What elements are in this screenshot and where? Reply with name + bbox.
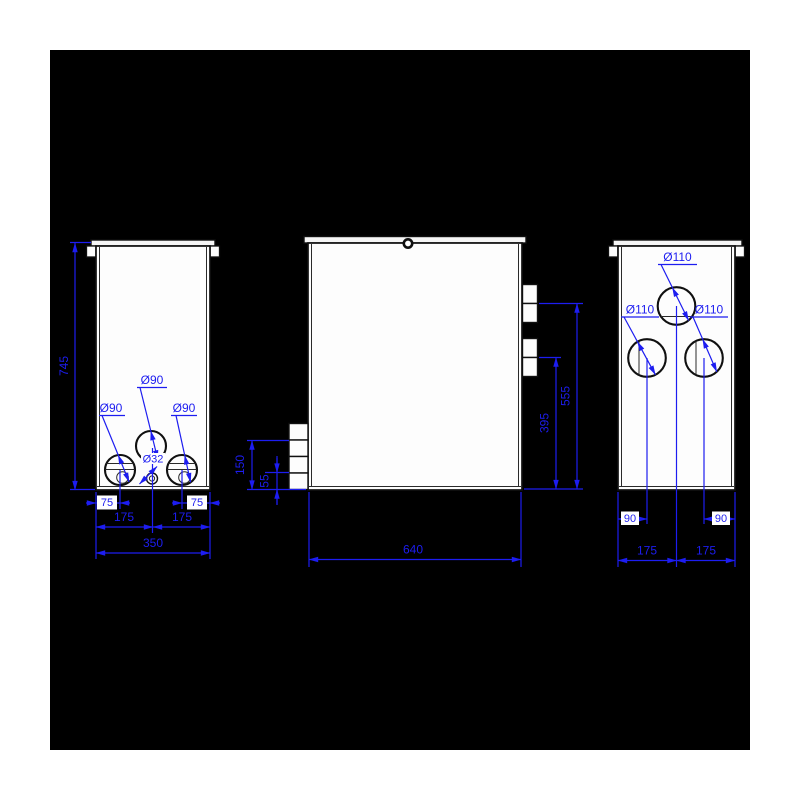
dia-label-right-hole: Ø110 <box>695 303 724 317</box>
dim-text-175-right: 175 <box>696 544 716 558</box>
dim-text-640: 640 <box>403 543 423 557</box>
dia-label-left-hole: Ø110 <box>626 303 655 317</box>
dim-text-55: 55 <box>258 474 272 488</box>
left-view-hook-left <box>87 246 97 257</box>
dim-text-395: 395 <box>538 413 552 433</box>
dim-text-75-right: 75 <box>191 497 203 509</box>
left-port-stub <box>289 457 308 474</box>
dim-text-175-right: 175 <box>172 510 192 524</box>
dia-label-left-hole: Ø90 <box>100 401 123 415</box>
dim-text-150: 150 <box>233 455 247 475</box>
right-port-stub <box>523 358 538 377</box>
right-view-top-lip <box>613 240 742 246</box>
dim-text-175-left: 175 <box>114 510 134 524</box>
front-view-body <box>308 243 522 490</box>
left-port-stub <box>289 440 308 457</box>
left-port-stub <box>289 473 308 490</box>
right-port-stub <box>523 339 538 358</box>
dim-text-75-left: 75 <box>101 497 113 509</box>
dia-label-top-hole: Ø110 <box>663 250 692 264</box>
right-view-hook-right <box>735 246 745 257</box>
technical-drawing: 745 Ø90 Ø90 Ø90 Ø32 75 75 <box>0 0 800 800</box>
left-view-hook-right <box>210 246 220 257</box>
right-port-stub <box>523 304 538 323</box>
right-port-stub <box>523 285 538 304</box>
dim-text-90-left: 90 <box>624 513 636 525</box>
front-view-top-lip <box>304 237 526 244</box>
dia-label-mid-hole: Ø90 <box>141 373 164 387</box>
top-hanger-hole <box>404 239 412 247</box>
right-side-view: Ø110 Ø110 Ø110 90 90 175 175 <box>609 240 745 567</box>
left-view-top-lip <box>91 240 215 246</box>
dia-label-small-hole: Ø32 <box>143 454 164 466</box>
left-port-stub <box>289 424 308 441</box>
dim-text-175-left: 175 <box>637 544 657 558</box>
dia-label-right-hole: Ø90 <box>173 401 196 415</box>
right-view-hook-left <box>609 246 619 257</box>
dim-text-745: 745 <box>57 356 71 376</box>
dim-text-555: 555 <box>559 386 573 406</box>
dim-text-350: 350 <box>143 536 163 550</box>
dim-text-90-right: 90 <box>715 513 727 525</box>
